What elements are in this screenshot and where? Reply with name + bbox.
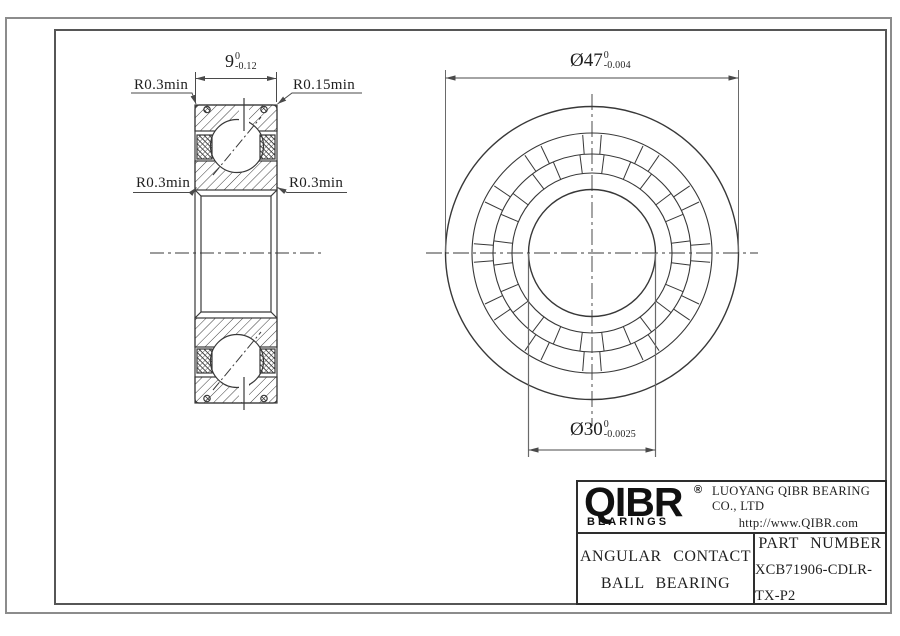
company-logo: QIBR ® BEARINGS — [578, 482, 712, 532]
company-name: LUOYANG QIBR BEARING CO., LTD — [712, 484, 885, 514]
fillet-label-mid-right: R0.3min — [289, 175, 343, 192]
width-dimension-value: 9 — [225, 52, 234, 70]
bore-diameter-dimension: Ø30 0 -0.0025 — [570, 420, 636, 440]
part-number-label: PART NUMBER — [758, 530, 881, 557]
bore-diameter-tolerance: 0 -0.0025 — [604, 420, 636, 440]
bore-diameter-value: Ø30 — [570, 420, 603, 439]
title-block-header-row: QIBR ® BEARINGS LUOYANG QIBR BEARING CO.… — [578, 482, 885, 534]
product-type-line2: BALL BEARING — [601, 570, 730, 597]
drawing-sheet: 9 0 -0.12 R0.3min R0.15min R0.3min R0.3m… — [0, 0, 900, 636]
outer-diameter-dimension: Ø47 0 -0.004 — [570, 51, 631, 71]
outer-diameter-value: Ø47 — [570, 51, 603, 70]
qibr-logo-subtext: BEARINGS — [587, 516, 669, 528]
part-number-cell: PART NUMBER XCB71906-CDLR-TX-P2 — [755, 534, 885, 605]
registered-trademark-icon: ® — [694, 484, 702, 496]
part-number-value: XCB71906-CDLR-TX-P2 — [755, 557, 885, 609]
width-dimension-tolerance: 0 -0.12 — [235, 52, 257, 72]
title-block: QIBR ® BEARINGS LUOYANG QIBR BEARING CO.… — [576, 480, 887, 605]
width-dimension: 9 0 -0.12 — [225, 52, 257, 72]
product-type-line1: ANGULAR CONTACT — [580, 543, 751, 570]
title-block-detail-row: ANGULAR CONTACT BALL BEARING PART NUMBER… — [578, 534, 885, 605]
fillet-label-top-right: R0.15min — [293, 77, 355, 94]
product-type-cell: ANGULAR CONTACT BALL BEARING — [578, 534, 755, 605]
company-info: LUOYANG QIBR BEARING CO., LTD http://www… — [712, 482, 885, 532]
fillet-label-mid-left: R0.3min — [136, 175, 190, 192]
company-website: http://www.QIBR.com — [739, 516, 858, 531]
fillet-label-top-left: R0.3min — [134, 77, 188, 94]
outer-diameter-tolerance: 0 -0.004 — [604, 51, 631, 71]
